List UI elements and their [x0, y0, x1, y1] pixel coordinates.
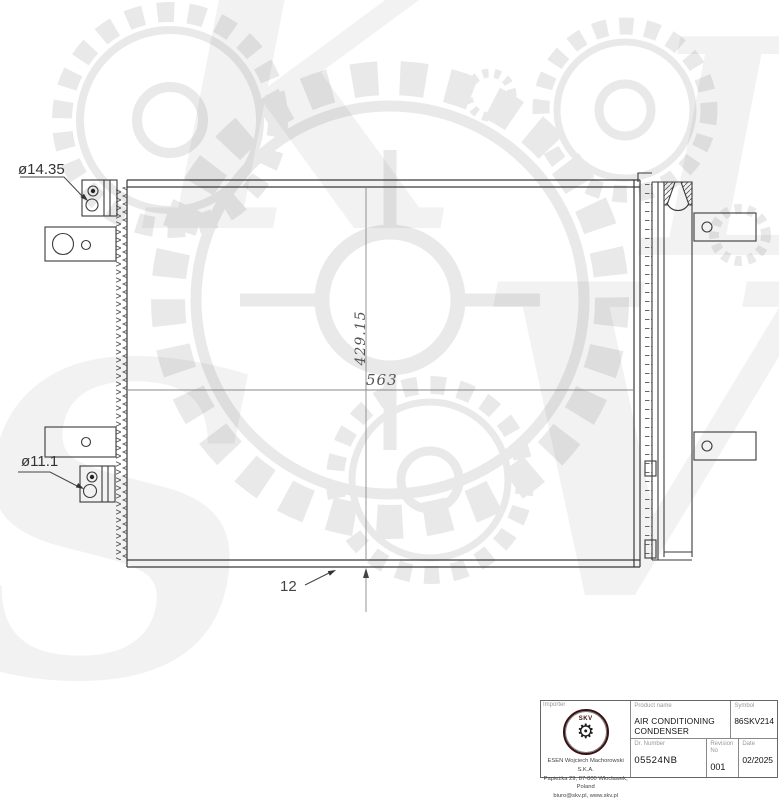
- importer-cell: Importer SKV ⚙ ESEN Wojciech Machorowski…: [541, 701, 631, 777]
- symbol-cell: Symbol 86SKV214: [731, 701, 777, 738]
- date-cell: Date 02/2025: [739, 739, 777, 777]
- side-fin-ticks: [645, 183, 652, 560]
- importer-street: Papieżka 29, 87-800 Włocławek, Poland: [543, 775, 628, 792]
- revision-cell: Revision No 001: [707, 739, 739, 777]
- revision-label: Revision No: [710, 741, 735, 755]
- logo-text: SKV: [579, 716, 593, 722]
- dimension-core-width: 563: [366, 371, 398, 389]
- product-name-value: AIR CONDITIONING CONDENSER: [634, 716, 727, 736]
- title-block: Importer SKV ⚙ ESEN Wojciech Machorowski…: [540, 700, 778, 778]
- dr-number-value: 05524NB: [634, 755, 703, 766]
- product-name-label: Product name: [634, 703, 671, 710]
- bottom-fitting: [80, 466, 115, 502]
- date-value: 02/2025: [742, 755, 774, 765]
- fin-serration: [116, 187, 127, 560]
- dr-number-cell: Dr. Number 05524NB: [631, 739, 707, 777]
- product-name-cell: Product name AIR CONDITIONING CONDENSER: [631, 701, 731, 738]
- importer-company: ESEN Wojciech Machorowski S.K.A.: [543, 757, 628, 774]
- date-label: Date: [742, 741, 755, 748]
- importer-contact: biuro@skv.pl, www.skv.pl: [543, 792, 628, 801]
- dimension-top-fitting-diameter: ø14.35: [18, 161, 65, 178]
- condenser-technical-drawing: [0, 0, 779, 700]
- dr-number-label: Dr. Number: [634, 741, 665, 748]
- dimension-core-height: 429.15: [353, 303, 369, 373]
- symbol-value: 86SKV214: [734, 716, 774, 726]
- revision-value: 001: [710, 762, 735, 772]
- dimension-bottom-fitting-diameter: ø11.1: [21, 453, 58, 470]
- top-fitting: [82, 180, 117, 216]
- symbol-label: Symbol: [734, 703, 754, 710]
- importer-label: Importer: [543, 702, 565, 709]
- skv-logo: SKV ⚙: [563, 709, 609, 755]
- side-view: [638, 173, 756, 560]
- dimension-core-depth: 12: [280, 578, 297, 595]
- gear-icon: ⚙: [577, 722, 595, 742]
- mounting-bracket-left-top: [45, 227, 116, 261]
